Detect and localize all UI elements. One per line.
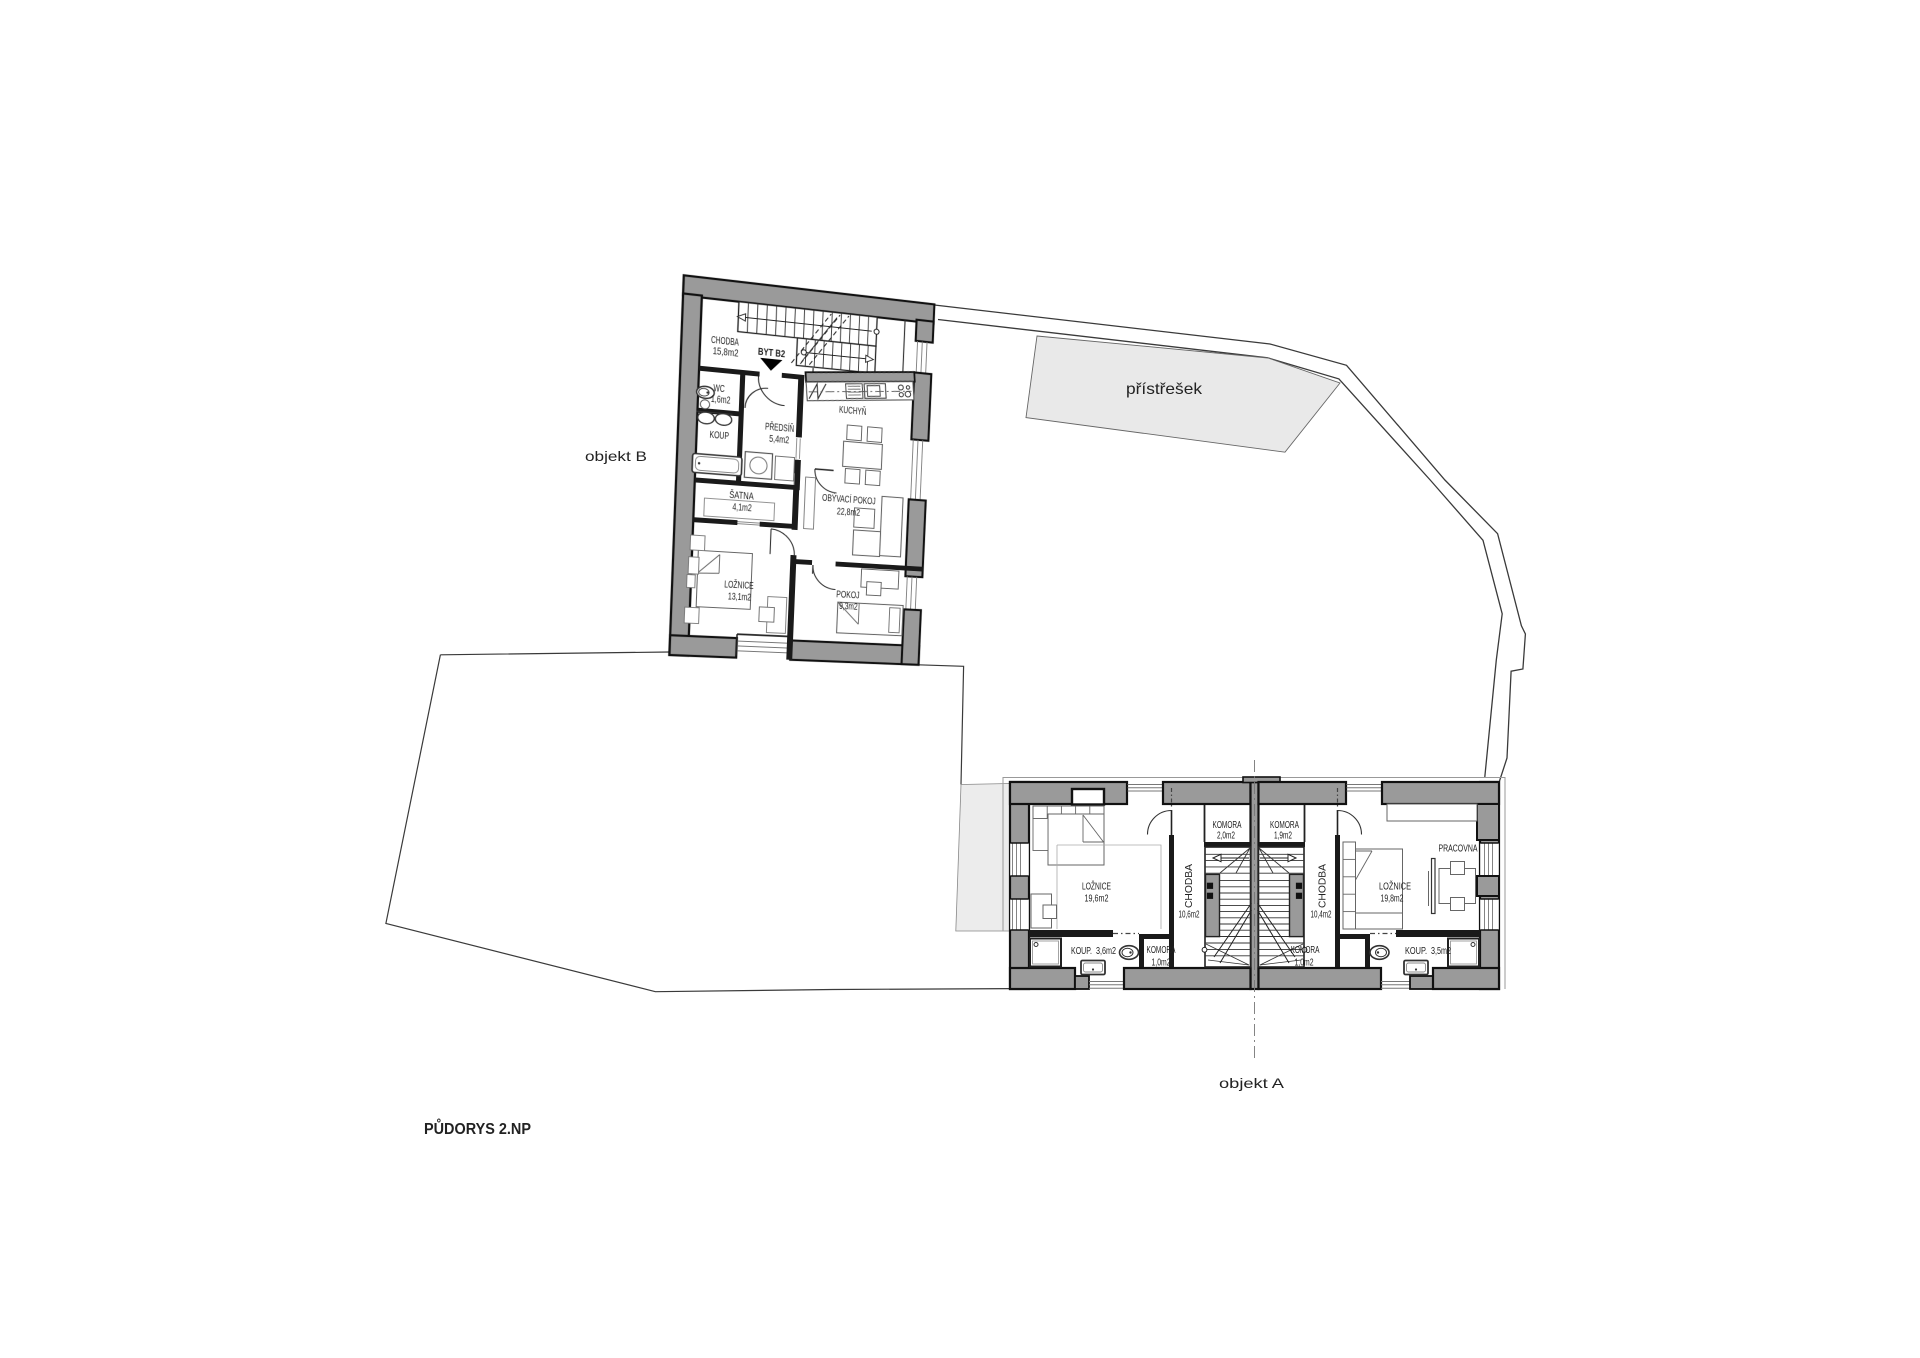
svg-text:10,4m2: 10,4m2	[1311, 910, 1332, 921]
svg-text:1,0m2: 1,0m2	[1152, 958, 1171, 969]
svg-text:KOUP.: KOUP.	[1071, 946, 1092, 957]
svg-text:OBÝVACÍ POKOJ: OBÝVACÍ POKOJ	[822, 492, 876, 507]
svg-text:LOŽNICE: LOŽNICE	[724, 579, 754, 592]
svg-text:19,6m2: 19,6m2	[1085, 894, 1109, 905]
svg-text:přístřešek: přístřešek	[1126, 381, 1203, 398]
svg-text:POKOJ: POKOJ	[836, 589, 860, 601]
svg-text:1,9m2: 1,9m2	[1274, 831, 1292, 842]
svg-text:22,8m2: 22,8m2	[837, 506, 861, 518]
svg-text:4,1m2: 4,1m2	[732, 502, 752, 514]
svg-text:PRACOVNA: PRACOVNA	[1439, 844, 1478, 855]
svg-text:KOUP.: KOUP.	[1405, 946, 1427, 957]
svg-text:KOUP: KOUP	[709, 430, 729, 442]
svg-text:WC: WC	[713, 383, 725, 395]
svg-text:15,8m2: 15,8m2	[713, 346, 739, 359]
svg-text:CHODBA: CHODBA	[1184, 864, 1195, 908]
svg-text:KOMORA: KOMORA	[1291, 945, 1320, 956]
svg-text:3,5m2: 3,5m2	[1431, 946, 1451, 957]
svg-text:9,3m2: 9,3m2	[839, 601, 858, 612]
svg-text:CHODBA: CHODBA	[1318, 864, 1329, 908]
svg-text:1,0m2: 1,0m2	[1295, 958, 1314, 969]
svg-text:5,4m2: 5,4m2	[769, 434, 789, 446]
svg-text:BYT B2: BYT B2	[758, 346, 786, 360]
svg-text:3,6m2: 3,6m2	[1096, 946, 1116, 957]
svg-text:LOŽNICE: LOŽNICE	[1082, 880, 1111, 893]
svg-text:PŮDORYS 2.NP: PŮDORYS 2.NP	[424, 1119, 531, 1138]
svg-text:KOMORA: KOMORA	[1270, 820, 1299, 831]
svg-text:13,1m2: 13,1m2	[728, 591, 752, 603]
svg-text:KOMORA: KOMORA	[1147, 945, 1176, 956]
svg-text:19,8m2: 19,8m2	[1381, 894, 1404, 905]
svg-text:ŠATNA: ŠATNA	[729, 489, 754, 502]
svg-text:2,0m2: 2,0m2	[1217, 831, 1235, 842]
svg-text:KUCHYŇ: KUCHYŇ	[839, 404, 867, 418]
svg-text:1,6m2: 1,6m2	[711, 394, 731, 406]
svg-text:10,6m2: 10,6m2	[1179, 910, 1200, 921]
svg-text:PŘEDSÍŇ: PŘEDSÍŇ	[765, 421, 795, 435]
svg-text:LOŽNICE: LOŽNICE	[1379, 880, 1411, 893]
svg-text:KOMORA: KOMORA	[1213, 820, 1242, 831]
svg-text:objekt A: objekt A	[1219, 1075, 1285, 1091]
svg-text:objekt B: objekt B	[585, 448, 647, 464]
